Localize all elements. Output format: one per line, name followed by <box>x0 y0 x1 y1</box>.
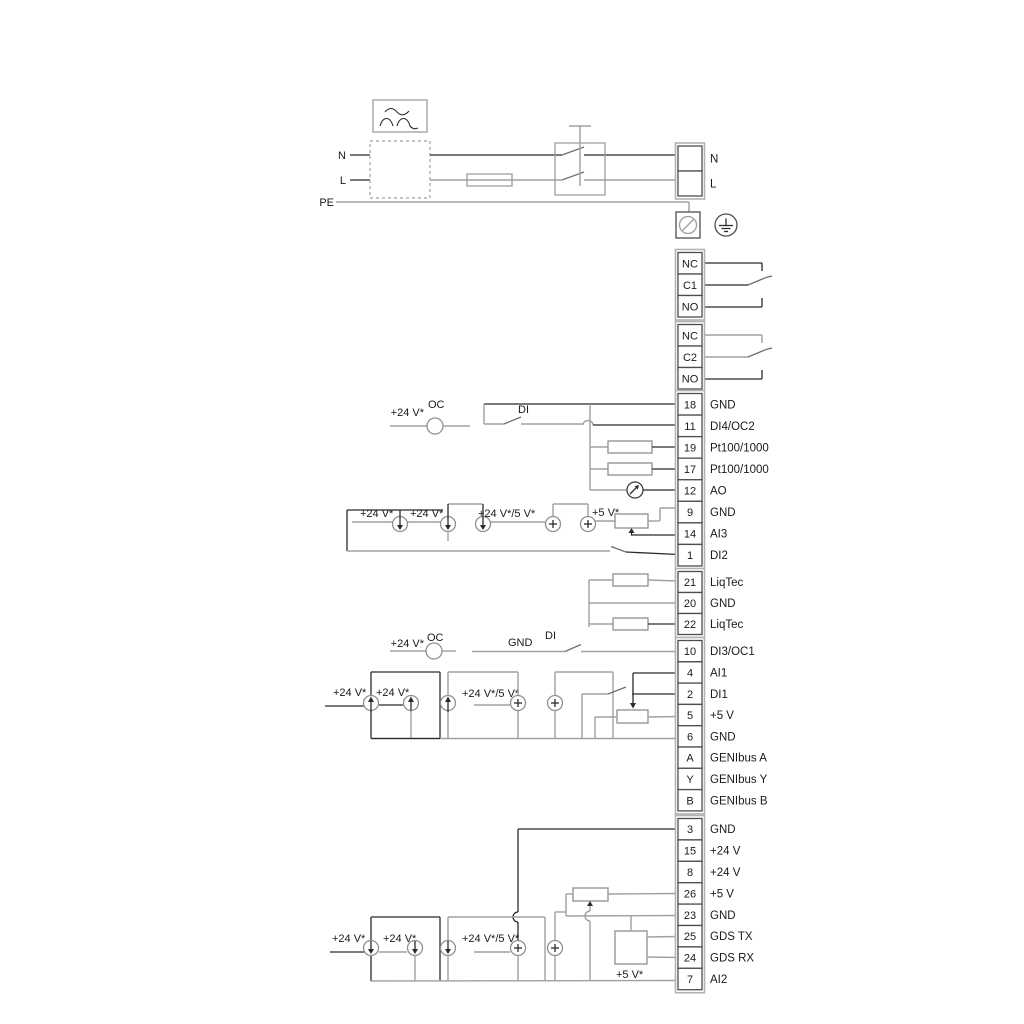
terminal-id-10: 10 <box>684 646 696 658</box>
terminal-id-11: 11 <box>684 421 695 433</box>
terminal-label-GND: GND <box>710 910 736 922</box>
gds-sensor-box <box>615 916 678 964</box>
terminal-id-26: 26 <box>684 888 696 900</box>
di3-oc1-row: +24 V* OC GND DI <box>390 630 678 659</box>
v24-label: +24 V* <box>360 508 394 520</box>
wire-segment <box>504 417 521 424</box>
open-collector-icon <box>426 643 442 659</box>
terminal-id-21: 21 <box>684 577 696 589</box>
terminal-label-GND: GND <box>710 824 736 836</box>
terminal-label-N: N <box>710 154 718 166</box>
earth-terminal-icon <box>676 212 700 238</box>
terminal-id-Y: Y <box>686 774 694 786</box>
terminal-id-19: 19 <box>684 442 696 454</box>
terminal-id-22: 22 <box>684 619 696 631</box>
terminal-id-14: 14 <box>684 529 696 541</box>
terminal-N <box>678 146 702 171</box>
terminal-group-io-c: 3GND15+24 V8+24 V26+5 V23GND25GDS TX24GD… <box>676 816 755 993</box>
wire-hop <box>583 421 593 426</box>
wire-segment <box>647 937 678 938</box>
ai1-di1-section: +24 V* +24 V* +24 V*/5 V* <box>325 672 678 739</box>
terminal-label-DI3/OC1: DI3/OC1 <box>710 646 755 658</box>
gnd-label: GND <box>508 637 533 649</box>
v24-v5-label: +24 V*/5 V* <box>462 933 520 945</box>
mains-input-section: N L PE <box>319 100 737 238</box>
terminal-group-liqtec: 21LiqTec20GND22LiqTec <box>676 569 744 638</box>
terminal-group-relay-2: NCC2NO <box>676 322 705 393</box>
terminal-group-relay-1: NCC1NO <box>676 250 705 321</box>
wire-segment <box>648 717 678 718</box>
terminal-label-GENIbus A: GENIbus A <box>710 753 767 765</box>
open-collector-icon <box>427 418 443 434</box>
terminal-label-DI2: DI2 <box>710 550 728 562</box>
wire-segment <box>748 350 766 358</box>
wire-segment <box>608 894 678 895</box>
relay-2-contact-wires <box>702 335 772 379</box>
wiper-arrow <box>630 703 636 709</box>
mains-n-label: N <box>338 150 346 162</box>
terminal-id-5: 5 <box>687 710 693 722</box>
terminal-id-NC: NC <box>682 258 698 270</box>
wire-segment <box>373 100 427 132</box>
potentiometer <box>615 514 648 528</box>
terminal-id-24: 24 <box>684 953 696 965</box>
potentiometer <box>573 888 608 901</box>
v24-label: +24 V* <box>410 508 444 520</box>
protective-earth-icon <box>715 214 737 236</box>
terminal-label-Pt100/1000: Pt100/1000 <box>710 464 769 476</box>
wire-segment <box>608 687 626 694</box>
terminal-id-15: 15 <box>684 846 696 858</box>
di-label: DI <box>545 630 556 642</box>
v5-label: +5 V* <box>616 969 644 981</box>
liqtec-sensor-resistor-1 <box>613 574 648 586</box>
wire-segment <box>615 931 647 964</box>
terminal-label-Pt100/1000: Pt100/1000 <box>710 442 769 454</box>
terminal-label-GND: GND <box>710 731 736 743</box>
wire-segment <box>647 957 678 958</box>
terminal-label-AI2: AI2 <box>710 974 727 986</box>
terminal-id-C2: C2 <box>683 352 697 364</box>
terminal-id-9: 9 <box>687 507 693 519</box>
wiring-diagram: N L PE <box>0 0 1024 1024</box>
terminal-id-6: 6 <box>687 731 693 743</box>
terminal-label-GND: GND <box>710 507 736 519</box>
terminal-id-NO: NO <box>682 301 699 313</box>
terminal-label-LiqTec: LiqTec <box>710 577 743 589</box>
terminal-label-DI4/OC2: DI4/OC2 <box>710 421 755 433</box>
relay-1-contact-wires <box>702 263 772 307</box>
terminal-id-20: 20 <box>684 598 696 610</box>
terminal-strip: NLNCC1NONCC2NO18GND11DI4/OC219Pt100/1000… <box>676 143 769 993</box>
terminal-id-7: 7 <box>687 974 693 986</box>
terminal-id-2: 2 <box>687 689 693 701</box>
v24-label: +24 V* <box>376 687 410 699</box>
v24-v5-label: +24 V*/5 V* <box>462 688 520 700</box>
terminal-label-GDS RX: GDS RX <box>710 953 754 965</box>
terminal-label-GND: GND <box>710 399 736 411</box>
mains-l-label: L <box>340 175 346 187</box>
drive-unit-box <box>370 141 430 198</box>
terminal-group-io-b: 10DI3/OC14AI12DI15+5 V6GNDAGENIbus AYGEN… <box>676 638 768 814</box>
terminal-id-C1: C1 <box>683 280 697 292</box>
wire-segment <box>632 533 679 535</box>
wire-segment <box>566 916 678 917</box>
terminal-label-GENIbus Y: GENIbus Y <box>710 774 768 786</box>
ai2-gds-section: +24 V* +24 V* +24 V*/5 V* <box>330 829 678 981</box>
terminal-id-B: B <box>686 795 693 807</box>
terminal-label-+24 V: +24 V <box>710 846 741 858</box>
wiring-diagram-canvas: N L PE <box>0 0 1024 1024</box>
terminal-label-GENIbus B: GENIbus B <box>710 795 768 807</box>
terminal-label-LiqTec: LiqTec <box>710 619 743 631</box>
terminal-label-GDS TX: GDS TX <box>710 931 753 943</box>
terminal-id-17: 17 <box>684 464 696 476</box>
terminal-id-NO: NO <box>682 373 699 385</box>
terminal-label-+5 V: +5 V <box>710 710 734 722</box>
di4-pt100-ao-section: +24 V* OC DI <box>390 399 678 498</box>
terminal-label-GND: GND <box>710 598 736 610</box>
terminal-id-1: 1 <box>687 550 693 562</box>
wire-segment <box>766 348 772 350</box>
terminal-L <box>678 171 702 196</box>
terminal-label-+24 V: +24 V <box>710 867 741 879</box>
wire-segment <box>626 552 678 555</box>
terminal-label-L: L <box>710 179 717 191</box>
terminal-id-12: 12 <box>684 486 696 498</box>
wire-segment <box>627 482 643 498</box>
mains-pe-label: PE <box>319 197 334 209</box>
wire-segment <box>611 547 626 553</box>
oc-label: OC <box>428 399 445 411</box>
terminal-id-4: 4 <box>687 667 693 679</box>
terminal-id-18: 18 <box>684 399 696 411</box>
wire-segment <box>648 580 678 581</box>
wire-segment <box>371 981 678 982</box>
v24-v5-label: +24 V*/5 V* <box>478 508 536 520</box>
terminal-group-mains-output: NL <box>676 143 719 199</box>
terminal-label-AI1: AI1 <box>710 667 727 679</box>
v24-label: +24 V* <box>391 407 425 419</box>
ai3-di2-section: +24 V* +24 V* +24 V*/5 V* +5 V* <box>347 504 678 555</box>
terminal-label-AI3: AI3 <box>710 529 727 541</box>
wire-segment <box>385 109 409 115</box>
sine-wave-icon <box>373 100 427 132</box>
terminal-id-25: 25 <box>684 931 696 943</box>
terminal-id-23: 23 <box>684 910 696 922</box>
terminal-id-A: A <box>686 753 694 765</box>
double-pole-switch <box>555 126 605 195</box>
wire-segment <box>766 276 772 278</box>
di-label: DI <box>518 404 529 416</box>
wire-segment <box>380 119 418 129</box>
terminal-label-AO: AO <box>710 486 727 498</box>
terminal-label-DI1: DI1 <box>710 689 728 701</box>
v24-label: +24 V* <box>391 638 425 650</box>
terminal-id-3: 3 <box>687 824 693 836</box>
pt100-resistor-2 <box>608 463 652 475</box>
v24-label: +24 V* <box>332 933 366 945</box>
terminal-group-io-a: 18GND11DI4/OC219Pt100/100017Pt100/100012… <box>676 391 769 569</box>
liqtec-sensor-resistor-2 <box>613 618 648 630</box>
wire-segment <box>565 645 581 652</box>
wiper-arrow <box>587 901 593 906</box>
oc-label: OC <box>427 632 444 644</box>
v24-label: +24 V* <box>333 687 367 699</box>
analog-output-meter-icon <box>627 482 643 498</box>
terminal-label-+5 V: +5 V <box>710 888 734 900</box>
wiper-arrow <box>629 528 635 533</box>
terminal-id-8: 8 <box>687 867 693 879</box>
potentiometer <box>617 710 648 723</box>
wire-segment <box>748 278 766 286</box>
pt100-resistor-1 <box>608 441 652 453</box>
liqtec-section <box>589 574 678 630</box>
terminal-id-NC: NC <box>682 330 698 342</box>
